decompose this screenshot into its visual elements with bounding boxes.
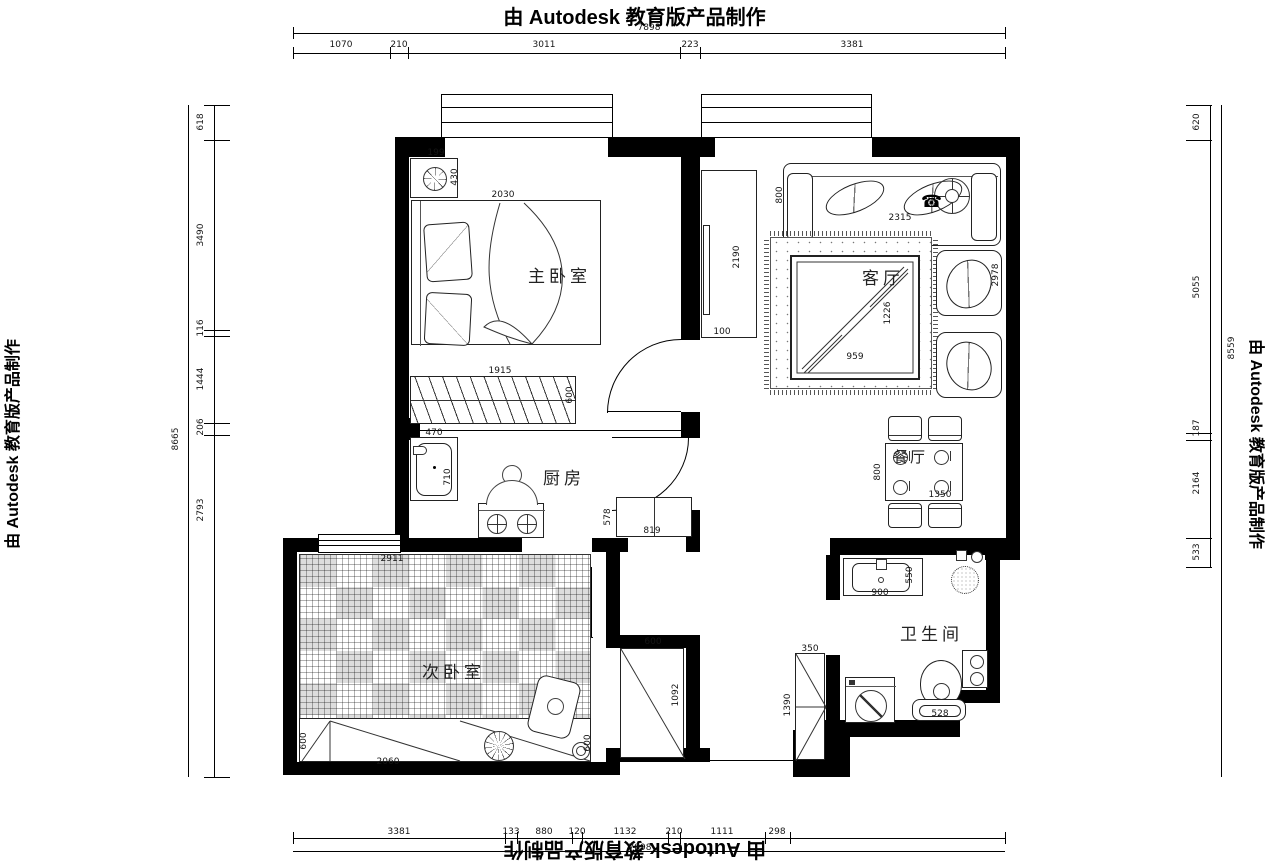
sofa-armrest: [971, 173, 997, 241]
dim-tatami-w: 2911: [370, 554, 414, 564]
wardrobe: [410, 376, 576, 424]
door-arc-master: [607, 339, 681, 413]
dim-bath-cabinet-w: 350: [788, 644, 832, 654]
dim-basin-w: 900: [858, 588, 902, 598]
dim-left-seg-4: 206: [196, 405, 206, 449]
dim-bottom-seg-6: 1111: [700, 827, 744, 837]
wall-segment: [986, 560, 1000, 693]
dim-desk-d-left: 600: [299, 719, 309, 763]
dim-sink-d: 710: [443, 455, 453, 499]
wall-segment: [283, 552, 297, 775]
wall-segment: [681, 157, 700, 340]
dim-basin-d: 550: [905, 553, 915, 597]
door-leaf-second-bedroom: [591, 567, 592, 637]
washing-machine: [845, 677, 895, 723]
wall-segment: [608, 137, 715, 157]
dim-right-seg-3: 2164: [1192, 461, 1202, 505]
wall-segment: [826, 655, 840, 720]
dim-bed-w: 2030: [481, 190, 525, 200]
person-sitting-head: [547, 698, 564, 715]
dim-top-seg-3: 223: [668, 40, 712, 50]
dim-counter-w: 819: [630, 526, 674, 536]
dim-bottom-seg-0: 3381: [377, 827, 421, 837]
floor-plan-sheet: 由 Autodesk 教育版产品制作 由 Autodesk 教育版产品制作 由 …: [0, 0, 1269, 862]
dim-dining-w: 1350: [918, 490, 962, 500]
dim-chairs-h: 2978: [991, 253, 1001, 297]
dim-bottom-seg-5: 210: [652, 827, 696, 837]
room-label-second-bedroom: 次卧室: [422, 658, 485, 683]
dim-right-seg-2: 187: [1192, 406, 1202, 450]
dining-chair: [928, 503, 962, 528]
dim-top-seg-1: 210: [377, 40, 421, 50]
dim-sofa-d: 800: [775, 173, 785, 217]
dim-toilet-w: 528: [918, 709, 962, 719]
burner-icon: [487, 514, 507, 534]
door-leaf-master: [607, 411, 681, 412]
dim-right-seg-0: 620: [1192, 100, 1202, 144]
bay-window-living: [701, 94, 872, 138]
faucet-icon: [413, 446, 427, 455]
wall-segment: [872, 137, 1020, 157]
fan-icon: [423, 167, 447, 191]
dim-dining-d: 800: [873, 450, 883, 494]
wall-segment: [283, 762, 620, 775]
dim-desk-d-right: 600: [583, 721, 593, 765]
dim-wardrobe-d: 600: [565, 373, 575, 417]
room-label-kitchen: 厨房: [543, 464, 585, 489]
dim-tv-wall-w: 100: [700, 327, 744, 337]
dim-top-seg-0: 1070: [319, 40, 363, 50]
dim-top-seg-4: 3381: [830, 40, 874, 50]
dim-bath-cabinet-h: 1390: [783, 683, 793, 727]
dim-left-seg-5: 2793: [196, 488, 206, 532]
dim-sink-w: 470: [412, 428, 456, 438]
dim-left-total: 8665: [171, 417, 181, 461]
dim-bottom-total: 7898: [618, 843, 662, 853]
armchair: [936, 332, 1002, 398]
stove: [478, 503, 544, 538]
dim-coffee-table-w: 959: [833, 352, 877, 362]
bath-cabinet: [795, 653, 825, 760]
wall-segment: [395, 157, 409, 552]
room-label-dining: 餐厅: [893, 446, 927, 467]
basin-tap-icon: [876, 559, 887, 570]
watermark-left: 由 Autodesk 教育版产品制作: [0, 304, 23, 584]
dim-right-seg-4: 533: [1192, 530, 1202, 574]
wall-segment: [681, 412, 700, 438]
dim-bottom-seg-3: 120: [555, 827, 599, 837]
fan-stool-icon: [484, 731, 514, 761]
wall-segment: [592, 538, 628, 552]
dim-hall-closet-w: 600: [631, 637, 675, 647]
dim-desk-w: 2060: [366, 757, 410, 767]
dim-left-seg-0: 618: [196, 100, 206, 144]
watermark-right: 由 Autodesk 教育版产品制作: [1246, 304, 1269, 584]
wall-segment: [400, 538, 522, 552]
dim-hall-closet-h: 1092: [671, 673, 681, 717]
dim-right-seg-1: 5055: [1192, 265, 1202, 309]
dim-top-seg-2: 3011: [522, 40, 566, 50]
tv-screen: [703, 225, 710, 315]
dim-wardrobe-w: 1915: [478, 366, 522, 376]
wall-segment: [606, 552, 620, 648]
dim-left-seg-2: 116: [196, 306, 206, 350]
dim-tv-wall-h: 2190: [732, 235, 742, 279]
dim-sofa-w: 2315: [878, 213, 922, 223]
dining-chair: [888, 503, 922, 528]
dim-left-seg-3: 1444: [196, 357, 206, 401]
plate-icon: [934, 450, 949, 465]
dim-right-total: 8559: [1227, 326, 1237, 370]
dim-master-cabinet-d: 430: [450, 155, 460, 199]
window-second-bedroom: [318, 534, 401, 553]
plate-icon: [893, 480, 908, 495]
dim-counter-d: 578: [603, 495, 613, 539]
dining-chair: [888, 416, 922, 441]
burner-icon: [517, 514, 537, 534]
dim-left-seg-1: 3490: [196, 213, 206, 257]
telephone-icon: ☎: [921, 192, 942, 212]
dim-coffee-table-h: 1226: [883, 291, 893, 335]
room-label-living-room: 客厅: [862, 264, 904, 289]
person-cook-body: [486, 480, 538, 505]
dim-top-total: 7898: [627, 23, 671, 33]
room-label-bathroom: 卫生间: [900, 620, 963, 645]
shower-knob-icon: [971, 551, 983, 563]
shower-head-icon: [951, 566, 979, 594]
door-leaf-kitchen: [612, 437, 688, 438]
dim-bottom-seg-7: 298: [755, 827, 799, 837]
room-label-master-bedroom: 主卧室: [528, 262, 591, 287]
bath-shelf: [962, 650, 988, 688]
wall-segment: [283, 538, 320, 552]
bay-window-master: [441, 94, 613, 138]
shower-valve-icon: [956, 550, 967, 561]
wall-segment: [1006, 157, 1020, 548]
dining-chair: [928, 416, 962, 441]
dim-bottom-seg-4: 1132: [603, 827, 647, 837]
wall-segment: [686, 648, 700, 762]
entry-threshold-line: [710, 760, 793, 761]
wall-segment: [826, 555, 840, 600]
